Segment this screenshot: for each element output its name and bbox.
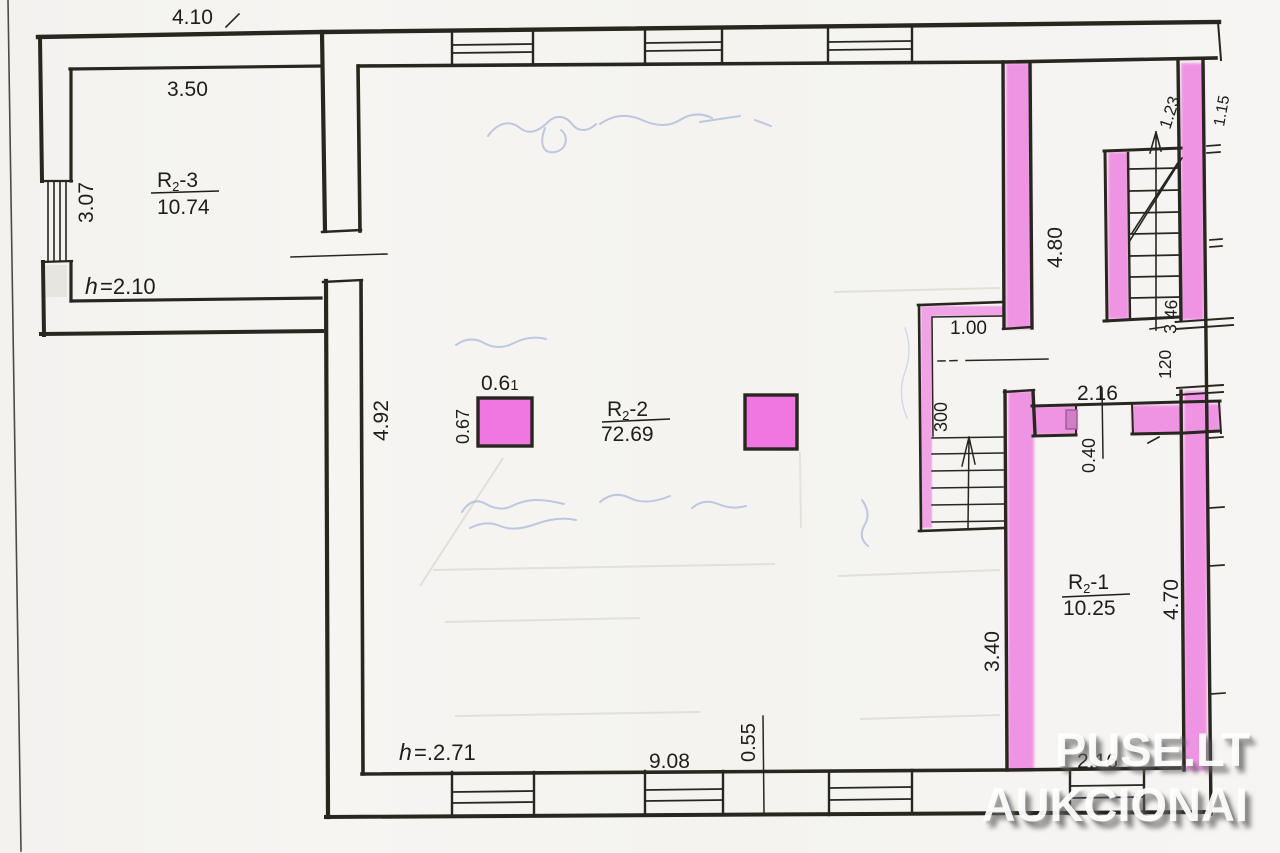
- svg-text:h: h: [399, 739, 412, 765]
- svg-text:3.46: 3.46: [1160, 299, 1181, 334]
- svg-text:0.67: 0.67: [453, 409, 473, 444]
- svg-text:4.92: 4.92: [370, 400, 393, 441]
- svg-text:72.69: 72.69: [601, 423, 654, 446]
- svg-text:0.61: 0.61: [481, 372, 519, 395]
- svg-text:1.15: 1.15: [1211, 94, 1233, 128]
- svg-text:=2.10: =2.10: [100, 274, 156, 299]
- svg-text:4.80: 4.80: [1044, 227, 1067, 268]
- svg-text:3.40: 3.40: [981, 631, 1004, 672]
- svg-text:0.55: 0.55: [738, 723, 760, 762]
- svg-text:120: 120: [1155, 350, 1175, 379]
- svg-text:2.16: 2.16: [1077, 382, 1118, 405]
- svg-text:h: h: [85, 273, 98, 299]
- svg-text:9.08: 9.08: [649, 750, 690, 773]
- svg-text:10.74: 10.74: [157, 196, 210, 219]
- svg-text:R2-1: R2-1: [1068, 571, 1109, 596]
- svg-text:3.07: 3.07: [75, 182, 98, 223]
- svg-text:3.50: 3.50: [167, 78, 208, 101]
- svg-text:300: 300: [931, 402, 951, 432]
- svg-text:4.70: 4.70: [1160, 579, 1183, 620]
- svg-text:4.10: 4.10: [172, 6, 213, 29]
- svg-text:R2-2: R2-2: [607, 398, 648, 423]
- svg-text:10.25: 10.25: [1063, 597, 1116, 620]
- svg-text:=.2.71: =.2.71: [414, 740, 476, 765]
- svg-text:R2-3: R2-3: [157, 169, 198, 194]
- svg-text:1.00: 1.00: [950, 318, 987, 339]
- svg-text:0.40: 0.40: [1079, 438, 1099, 473]
